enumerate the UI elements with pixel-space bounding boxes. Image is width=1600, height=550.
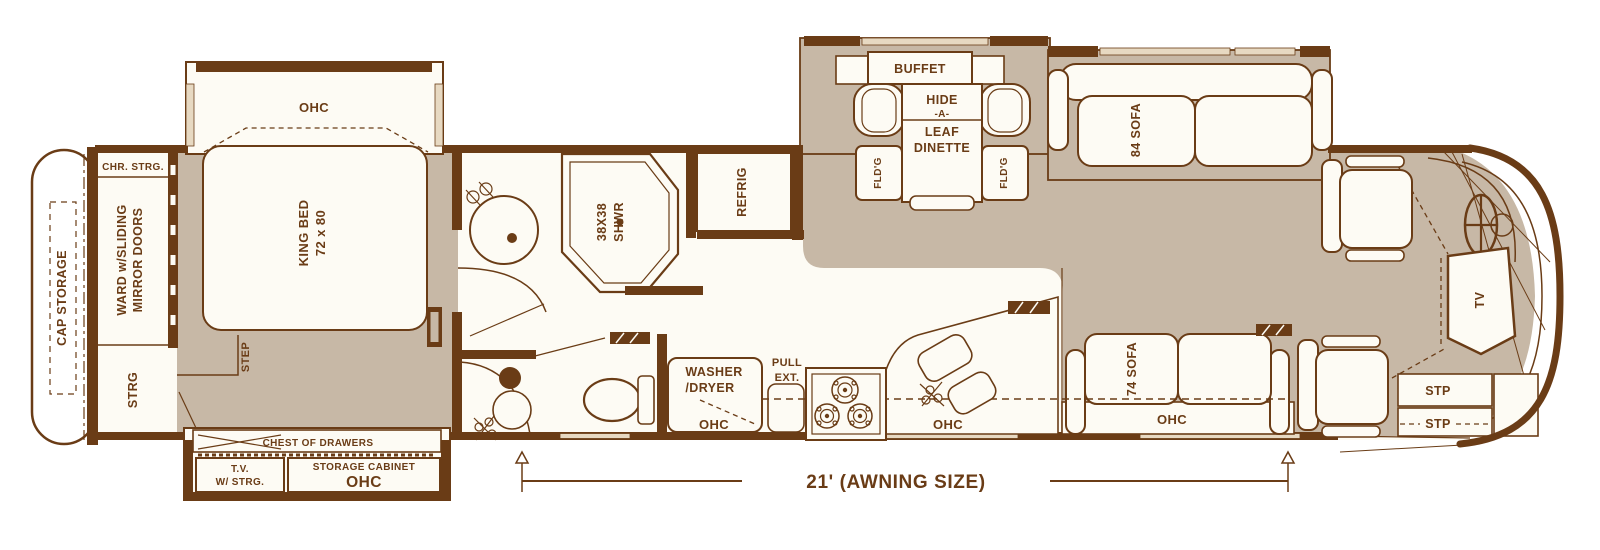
cap-storage-label: CAP STORAGE [55, 250, 69, 346]
kitchen-ohc-label: OHC [933, 417, 963, 432]
front-tv-label: TV [1473, 291, 1487, 308]
storage-cabinet-ohc-label: OHC [346, 474, 382, 491]
chair-storage-label: CHR. STRG. [102, 162, 164, 173]
vent [610, 332, 650, 344]
sofa-armrest [1048, 70, 1068, 150]
sofa-back [1060, 64, 1312, 100]
dryer-label: /DRYER [685, 381, 734, 395]
passenger-armrest [1322, 426, 1380, 437]
shower-label: 38X38 [595, 203, 609, 241]
window [1100, 48, 1230, 55]
washer-ohc-label: OHC [699, 417, 729, 432]
dimension-arrow [1282, 452, 1294, 463]
dinette-label2: -A- [934, 109, 949, 120]
window [560, 434, 630, 439]
refrigerator: REFRIG [697, 153, 791, 231]
driver-armrest [1346, 250, 1404, 261]
king-bed-label: KING BED [296, 200, 311, 267]
dimension-arrow [516, 452, 528, 463]
window [862, 38, 988, 45]
sink-drain [507, 233, 517, 243]
sofa-84-label: 84 SOFA [1129, 103, 1143, 157]
passenger-armrest [1322, 336, 1380, 347]
sofa-armrest [1270, 350, 1289, 434]
sofa-cushion [1195, 96, 1312, 166]
pull-ext-label: PULL [772, 357, 802, 369]
storage-label: STRG [126, 372, 140, 408]
sofa-armrest [1066, 350, 1085, 434]
washer-label: WASHER [685, 365, 742, 379]
awning-dimension: 21' (AWNING SIZE) [516, 452, 1294, 493]
chest-label: CHEST OF DRAWERS [263, 438, 374, 449]
vent [1008, 301, 1050, 314]
dinette: BUFFET HIDE -A- LEAF DINETTE FLD'G FLD'G [836, 52, 1030, 210]
bath-sink [470, 196, 538, 264]
toilet-tank [638, 376, 654, 424]
step-upper-label: STP [1425, 384, 1451, 398]
king-bed-size-label: 72 x 80 [313, 210, 328, 256]
shower-label2: SHWR [612, 202, 626, 242]
tank-icon [499, 367, 521, 389]
passenger-seat [1316, 350, 1388, 424]
half-bath-sink [493, 391, 531, 429]
stove [806, 368, 886, 440]
rv-floorplan: CAP STORAGE CHR. STRG. WARD w/SLIDING MI… [0, 0, 1600, 550]
tv-storage-label: T.V. [231, 464, 249, 475]
buffet-label: BUFFET [894, 62, 946, 76]
pull-ext-label2: EXT. [775, 372, 800, 384]
pullout-counter [768, 384, 804, 432]
sofa-armrest [1312, 70, 1332, 150]
window [435, 84, 443, 146]
wardrobe-label2: MIRROR DOORS [131, 208, 145, 313]
driver-seat [1340, 170, 1412, 248]
step-lower-label: STP [1425, 417, 1451, 431]
dinette-label3: LEAF [925, 125, 959, 139]
dinette-label4: DINETTE [914, 141, 970, 155]
sofa-ohc-label: OHC [1157, 412, 1187, 427]
range [806, 368, 886, 440]
sofa-74-label: 74 SOFA [1125, 342, 1139, 396]
sofa-84: 84 SOFA [1048, 64, 1332, 166]
tv-storage-label2: W/ STRG. [216, 477, 265, 488]
folding-chair-label: FLD'G [999, 157, 1010, 189]
wardrobe-label: WARD w/SLIDING [115, 204, 129, 315]
window [186, 84, 194, 146]
floorplan-drawing: CAP STORAGE CHR. STRG. WARD w/SLIDING MI… [0, 0, 1600, 550]
vent [1256, 324, 1292, 336]
refrigerator-label: REFRIG [735, 167, 749, 217]
washer-dryer: WASHER /DRYER OHC [668, 358, 762, 432]
bedroom-ohc-label: OHC [299, 100, 329, 115]
dinette-bench [910, 196, 974, 210]
sofa-cushion [1178, 334, 1271, 404]
driver-armrest [1346, 156, 1404, 167]
chest-slideout: CHEST OF DRAWERS T.V. W/ STRG. STORAGE C… [193, 430, 441, 492]
folding-chair-label: FLD'G [873, 157, 884, 189]
step-label: STEP [240, 342, 252, 372]
window [1235, 48, 1295, 55]
buffet-side-cabinet [836, 56, 870, 84]
dinette-label1: HIDE [926, 93, 957, 107]
buffet-side-cabinet [970, 56, 1004, 84]
storage-cabinet-label: STORAGE CABINET [313, 462, 416, 473]
awning-size-label: 21' (AWNING SIZE) [806, 472, 985, 493]
